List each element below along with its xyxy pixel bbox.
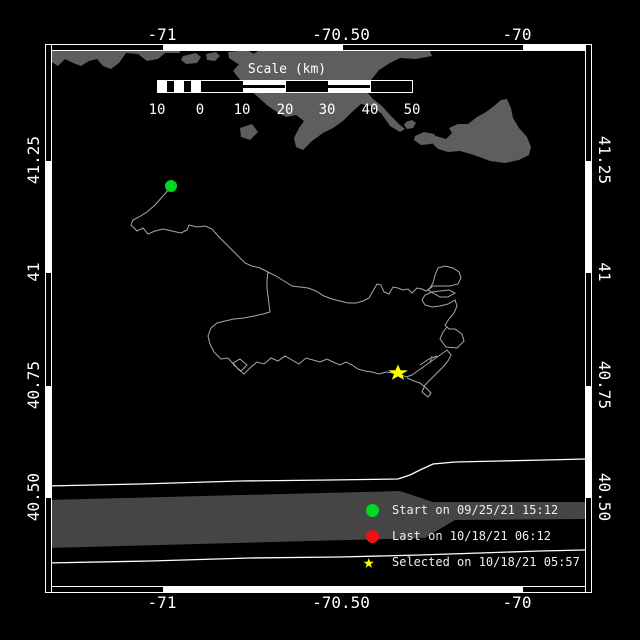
scalebar-segment bbox=[192, 81, 200, 92]
legend-label-last: Last on 10/18/21 06:12 bbox=[392, 529, 551, 543]
scalebar-title: Scale (km) bbox=[225, 62, 349, 77]
land-cape-strip bbox=[46, 51, 180, 69]
legend-marker-cell bbox=[362, 504, 392, 517]
scalebar-segment-stripe bbox=[328, 85, 370, 88]
land-shoal bbox=[240, 124, 258, 140]
scalebar-tick-label: 10 bbox=[225, 102, 259, 118]
legend-item-start: Start on 09/25/21 15:12 bbox=[362, 497, 580, 523]
border-segment bbox=[46, 386, 51, 498]
map-plot: -71 -70.50 -70 -71 -70.50 -70 41.25 41 4… bbox=[0, 0, 640, 640]
scalebar-divider bbox=[191, 81, 192, 92]
scalebar-tick-label: 10 bbox=[140, 102, 174, 118]
map-border-right bbox=[585, 44, 592, 593]
scalebar-divider bbox=[370, 81, 371, 92]
border-segment bbox=[586, 386, 591, 498]
start-dot-icon bbox=[366, 504, 379, 517]
legend-label-start: Start on 09/25/21 15:12 bbox=[392, 503, 558, 517]
selected-marker-star bbox=[388, 365, 408, 380]
y-axis-tick-right: 40.50 bbox=[596, 462, 612, 532]
land-islet bbox=[181, 53, 201, 64]
x-axis-tick-bottom: -70 bbox=[477, 595, 557, 611]
map-border-left bbox=[45, 44, 52, 593]
border-segment bbox=[163, 45, 343, 50]
scalebar-divider bbox=[174, 81, 175, 92]
scalebar-segment-stripe bbox=[243, 85, 285, 88]
scalebar-divider bbox=[285, 81, 286, 92]
scalebar-tick-label: 40 bbox=[353, 102, 387, 118]
legend: Start on 09/25/21 15:12 Last on 10/18/21… bbox=[362, 497, 580, 575]
y-axis-tick-left: 40.50 bbox=[26, 462, 42, 532]
legend-item-selected: ★ Selected on 10/18/21 05:57 bbox=[362, 549, 580, 575]
x-axis-tick-top: -70 bbox=[477, 27, 557, 43]
y-axis-tick-right: 40.75 bbox=[596, 350, 612, 420]
x-axis-tick-top: -70.50 bbox=[301, 27, 381, 43]
y-axis-tick-left: 41 bbox=[26, 237, 42, 307]
y-axis-tick-left: 41.25 bbox=[26, 125, 42, 195]
selected-star-icon: ★ bbox=[363, 553, 374, 572]
scalebar-segment bbox=[243, 81, 285, 92]
scalebar-tick-label: 50 bbox=[395, 102, 429, 118]
last-dot-icon bbox=[366, 530, 379, 543]
map-border-bottom bbox=[45, 586, 592, 593]
border-segment bbox=[163, 587, 523, 592]
scalebar-divider bbox=[183, 81, 184, 92]
scalebar bbox=[157, 80, 413, 93]
start-marker-dot bbox=[165, 180, 177, 192]
y-axis-tick-right: 41 bbox=[596, 237, 612, 307]
scalebar-tick-label: 0 bbox=[183, 102, 217, 118]
lane-boundary-upper bbox=[46, 459, 585, 486]
y-axis-tick-left: 40.75 bbox=[26, 350, 42, 420]
x-axis-tick-bottom: -70.50 bbox=[301, 595, 381, 611]
land-islet bbox=[206, 52, 220, 61]
land-small-islets bbox=[404, 120, 438, 145]
x-axis-tick-top: -71 bbox=[122, 27, 202, 43]
land-nantucket-island bbox=[431, 99, 531, 163]
drifter-track bbox=[131, 187, 464, 397]
scalebar-segment bbox=[328, 81, 370, 92]
legend-marker-cell bbox=[362, 530, 392, 543]
legend-label-selected: Selected on 10/18/21 05:57 bbox=[392, 555, 580, 569]
border-segment bbox=[46, 161, 51, 273]
map-border-top bbox=[45, 44, 592, 51]
scalebar-tick-label: 20 bbox=[268, 102, 302, 118]
border-segment bbox=[586, 161, 591, 273]
scalebar-divider bbox=[200, 81, 201, 92]
border-segment bbox=[523, 45, 591, 50]
legend-item-last: Last on 10/18/21 06:12 bbox=[362, 523, 580, 549]
scalebar-tick-label: 30 bbox=[310, 102, 344, 118]
scalebar-divider bbox=[166, 81, 167, 92]
y-axis-tick-right: 41.25 bbox=[596, 125, 612, 195]
legend-marker-cell: ★ bbox=[362, 553, 392, 572]
x-axis-tick-bottom: -71 bbox=[122, 595, 202, 611]
